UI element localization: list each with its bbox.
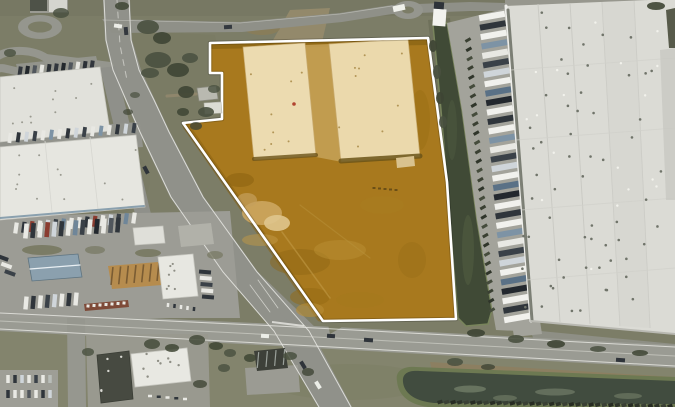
water-features-shape — [614, 393, 642, 399]
trees-shape — [632, 350, 648, 356]
roads-shape — [28, 22, 52, 33]
trees-shape — [145, 52, 171, 68]
highlighted-parcel-shape — [329, 39, 420, 162]
water-features-shape — [447, 100, 457, 160]
highlighted-parcel-shape — [360, 196, 404, 214]
highlighted-parcel-shape — [336, 292, 384, 308]
vehicles-shape — [364, 338, 373, 343]
trees-shape — [590, 346, 606, 352]
vehicles-shape — [224, 25, 232, 29]
trees-shape — [647, 2, 665, 10]
trees-shape — [177, 108, 189, 116]
vehicles-shape — [432, 9, 446, 27]
vehicles-shape — [327, 334, 335, 339]
highlighted-parcel-shape — [242, 234, 278, 246]
trees-shape — [436, 92, 444, 104]
water-features-shape — [535, 389, 575, 396]
trees-shape — [190, 122, 202, 130]
west-warehouses-shape — [30, 0, 47, 11]
east-warehouse — [506, 0, 675, 334]
trees-shape — [439, 116, 447, 128]
vehicles-shape — [261, 334, 269, 339]
water-features-shape — [462, 215, 474, 285]
truck-stop-shape — [178, 223, 214, 247]
trees-shape — [467, 329, 485, 337]
roads-shape — [67, 317, 86, 407]
trees-shape — [547, 340, 565, 348]
trees-shape — [208, 85, 220, 93]
trees-shape — [198, 107, 214, 117]
trees-shape — [429, 40, 437, 52]
trees-shape — [508, 335, 524, 343]
trees-shape — [123, 109, 133, 115]
aerial-photo — [0, 0, 675, 407]
truck-stop-shape — [22, 245, 62, 255]
trees-shape — [82, 348, 94, 356]
trees-shape — [137, 20, 159, 34]
water-features-shape — [454, 386, 486, 393]
trees-shape — [209, 342, 223, 350]
trees-shape — [153, 32, 171, 44]
trees-shape — [244, 354, 256, 362]
trees-shape — [224, 349, 236, 357]
trees-shape — [218, 364, 230, 372]
highlighted-parcel-shape — [264, 215, 290, 231]
highlighted-parcel-shape — [243, 43, 316, 160]
truck-stop-shape — [85, 246, 105, 254]
highlighted-parcel-shape — [396, 156, 415, 168]
trees-shape — [283, 352, 297, 360]
trees-shape — [141, 68, 159, 78]
trees-shape — [4, 49, 16, 57]
trees-shape — [189, 335, 205, 345]
trees-shape — [193, 380, 207, 388]
trees-shape — [115, 2, 129, 10]
east-warehouse-shape — [506, 0, 675, 334]
trees-shape — [481, 364, 495, 370]
gas-station-shape — [131, 348, 191, 387]
gas-station-shape — [254, 348, 288, 371]
vehicles-shape — [124, 27, 129, 35]
trees-shape — [178, 86, 194, 98]
trees-shape — [182, 53, 198, 63]
truck-stop-shape — [133, 226, 165, 245]
highlighted-parcel-shape — [226, 173, 254, 187]
vehicles-shape — [616, 358, 625, 363]
trees-shape — [130, 92, 140, 98]
water-features-shape — [493, 395, 517, 401]
trees-shape — [53, 8, 69, 18]
trees-shape — [447, 358, 463, 366]
truck-stop-shape — [158, 254, 198, 299]
gas-station-shape — [97, 351, 133, 403]
truck-stop-shape — [207, 251, 223, 259]
highlighted-parcel-shape — [398, 242, 426, 278]
trees-shape — [144, 339, 160, 349]
highlighted-parcel-shape — [292, 102, 296, 106]
truck-stop-shape — [135, 249, 161, 257]
trees-shape — [433, 65, 441, 79]
vehicles-shape — [434, 2, 444, 10]
highlighted-parcel-shape — [314, 240, 366, 260]
trees-shape — [167, 63, 189, 77]
trees-shape — [165, 344, 179, 352]
